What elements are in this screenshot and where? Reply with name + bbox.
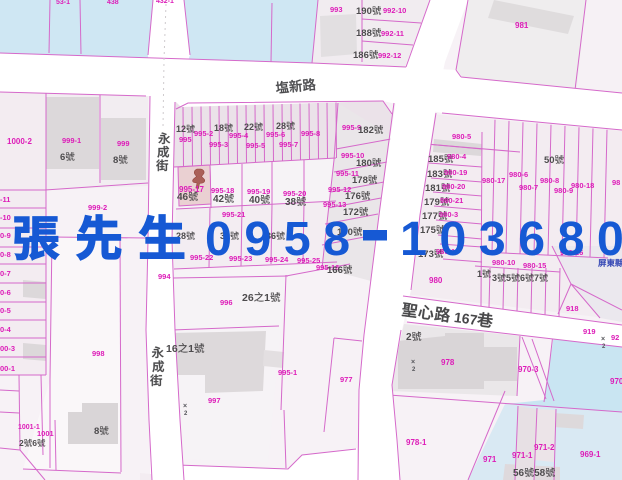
svg-text:8: 8: [94, 426, 99, 437]
svg-text:2: 2: [406, 332, 412, 343]
svg-text:980-5: 980-5: [452, 132, 471, 141]
svg-text:6: 6: [60, 152, 65, 163]
svg-text:12: 12: [176, 124, 186, 134]
svg-text:181: 181: [425, 183, 442, 194]
svg-text:53-1: 53-1: [56, 0, 70, 6]
svg-text:2: 2: [19, 438, 24, 448]
svg-text:980-18: 980-18: [571, 181, 594, 190]
svg-text:978: 978: [441, 358, 455, 367]
svg-text:438: 438: [107, 0, 119, 6]
svg-text:5: 5: [506, 273, 511, 283]
svg-text:98: 98: [612, 178, 620, 187]
svg-text:190: 190: [356, 6, 372, 17]
svg-text:0-4: 0-4: [0, 325, 12, 334]
svg-text:999: 999: [117, 139, 130, 148]
svg-text:182: 182: [358, 125, 374, 136]
svg-text:980: 980: [429, 276, 443, 285]
svg-text:188: 188: [356, 28, 372, 39]
svg-text:980-4: 980-4: [447, 152, 467, 161]
svg-text:0958: 0958: [205, 212, 363, 266]
svg-text:970-3: 970-3: [518, 365, 539, 374]
svg-text:992-11: 992-11: [381, 29, 404, 38]
svg-text:56: 56: [513, 468, 525, 479]
svg-text:0-8: 0-8: [0, 250, 11, 259]
svg-text:971-2: 971-2: [534, 443, 555, 452]
svg-text:995-1: 995-1: [278, 368, 297, 377]
svg-text:1: 1: [264, 292, 270, 304]
svg-text:1001: 1001: [37, 429, 54, 438]
svg-text:1000-2: 1000-2: [7, 137, 32, 146]
svg-text:7: 7: [534, 273, 539, 283]
svg-text:176: 176: [345, 191, 361, 202]
svg-text:981: 981: [515, 21, 529, 30]
svg-text:918: 918: [566, 304, 579, 313]
svg-text:×: ×: [411, 359, 415, 366]
svg-text:00-1: 00-1: [0, 364, 15, 373]
svg-text:0-5: 0-5: [0, 306, 11, 315]
svg-text:18: 18: [214, 123, 224, 133]
svg-text:995-6: 995-6: [266, 130, 285, 139]
svg-text:46: 46: [177, 192, 189, 203]
svg-text:997: 997: [208, 396, 221, 405]
svg-text:38: 38: [285, 197, 297, 208]
svg-text:995-7: 995-7: [279, 140, 298, 149]
svg-text:999-2: 999-2: [88, 203, 107, 212]
svg-text:166: 166: [327, 265, 343, 276]
svg-text:993: 993: [330, 5, 343, 14]
svg-text:992-12: 992-12: [378, 51, 401, 60]
svg-text:977: 977: [340, 375, 353, 384]
svg-text:978-1: 978-1: [406, 438, 427, 447]
svg-text:994: 994: [158, 272, 171, 281]
svg-text:1: 1: [188, 343, 194, 355]
svg-text:995: 995: [179, 135, 192, 144]
svg-text:980-8: 980-8: [540, 176, 559, 185]
svg-text:0-9: 0-9: [0, 231, 11, 240]
svg-text:999-1: 999-1: [62, 136, 81, 145]
svg-text:42: 42: [213, 194, 225, 205]
svg-text:969-1: 969-1: [580, 450, 601, 459]
svg-text:1: 1: [477, 269, 482, 279]
svg-text:92: 92: [611, 333, 619, 342]
svg-text:28: 28: [276, 121, 286, 131]
svg-text:6: 6: [520, 273, 525, 283]
svg-text:971: 971: [483, 455, 497, 464]
svg-text:6: 6: [32, 438, 37, 448]
svg-text:980-20: 980-20: [442, 182, 465, 191]
svg-text:432-1: 432-1: [156, 0, 174, 5]
svg-text:8: 8: [113, 155, 118, 166]
svg-text:992-10: 992-10: [383, 6, 406, 15]
svg-text:178: 178: [352, 175, 368, 186]
svg-text:58: 58: [534, 468, 546, 479]
svg-text:995-3: 995-3: [209, 140, 228, 149]
svg-text:919: 919: [583, 327, 596, 336]
svg-text:×: ×: [601, 336, 605, 343]
svg-text:995-2: 995-2: [194, 129, 213, 138]
svg-text:3: 3: [492, 273, 497, 283]
svg-text:995-8: 995-8: [301, 129, 320, 138]
svg-text:22: 22: [244, 122, 254, 132]
svg-text:185: 185: [428, 154, 445, 165]
svg-text:0-6: 0-6: [0, 288, 11, 297]
svg-text:179: 179: [424, 197, 440, 208]
svg-text:×: ×: [183, 403, 187, 410]
svg-text:40: 40: [249, 195, 261, 206]
svg-text:180: 180: [356, 158, 372, 169]
svg-text:103680: 103680: [400, 212, 622, 266]
svg-text:0-7: 0-7: [0, 269, 11, 278]
svg-text:-10: -10: [0, 213, 11, 222]
svg-text:998: 998: [92, 349, 105, 358]
svg-text:980-6: 980-6: [509, 170, 528, 179]
svg-text:00-3: 00-3: [0, 344, 15, 353]
svg-text:996: 996: [220, 298, 233, 307]
svg-text:186: 186: [353, 50, 369, 61]
svg-text:995-4: 995-4: [229, 131, 249, 140]
svg-text:980-19: 980-19: [444, 168, 467, 177]
svg-text:980-7: 980-7: [519, 183, 538, 192]
svg-text:50: 50: [544, 155, 555, 166]
svg-text:971-1: 971-1: [512, 451, 533, 460]
svg-text:26: 26: [242, 292, 254, 304]
svg-text:995-5: 995-5: [246, 141, 265, 150]
svg-text:980-17: 980-17: [482, 176, 505, 185]
svg-text:16: 16: [166, 343, 178, 355]
svg-text:167: 167: [453, 309, 478, 328]
svg-text:-11: -11: [0, 195, 10, 204]
svg-text:183: 183: [427, 169, 443, 180]
svg-text:970: 970: [610, 377, 622, 386]
svg-text:980-21: 980-21: [440, 196, 463, 205]
